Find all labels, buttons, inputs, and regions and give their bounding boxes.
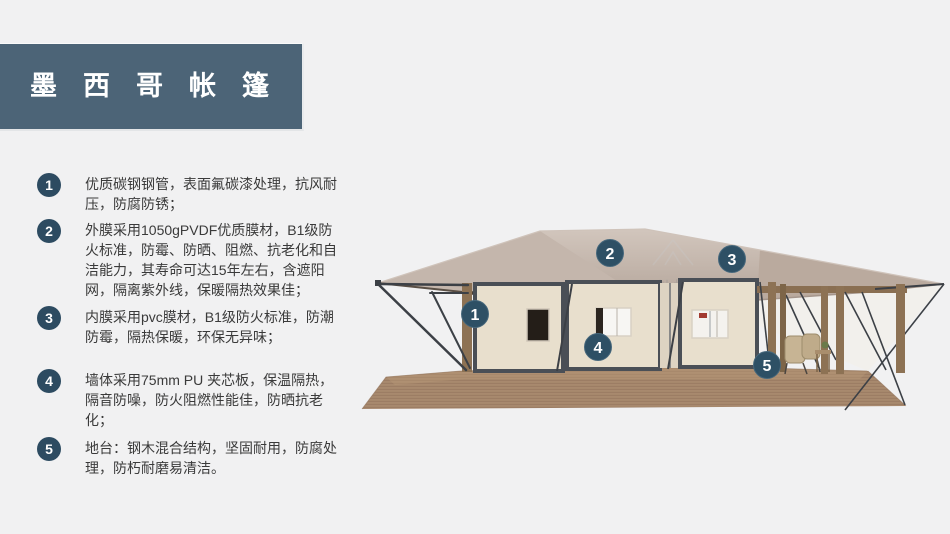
feature-number-badge: 1	[37, 173, 61, 197]
feature-item-4: 4 墙体采用75mm PU 夹芯板，保温隔热，隔音防噪，防火阻燃性能佳，防晒抗老…	[37, 367, 347, 430]
feature-item-3: 3 内膜采用pvc膜材，B1级防火标准，防潮防霉，隔热保暖，环保无异味；	[37, 304, 347, 347]
feature-text: 内膜采用pvc膜材，B1级防火标准，防潮防霉，隔热保暖，环保无异味；	[85, 307, 339, 347]
callout-1: 1	[462, 301, 489, 328]
feature-item-5: 5 地台：钢木混合结构，坚固耐用，防腐处理，防朽耐磨易清洁。	[37, 435, 347, 478]
callout-number: 3	[728, 252, 737, 269]
side-table	[815, 350, 831, 354]
feature-item-2: 2 外膜采用1050gPVDF优质膜材，B1级防火标准，防霉、防晒、阻燃、抗老化…	[37, 217, 347, 300]
feature-number-badge: 4	[37, 369, 61, 393]
feature-number-badge: 2	[37, 219, 61, 243]
wall-modules	[475, 280, 757, 371]
window-left	[527, 309, 549, 341]
feature-item-1: 1 优质碳钢钢管，表面氟碳漆处理，抗风耐压，防腐防锈；	[37, 171, 347, 214]
callout-4: 4	[585, 334, 612, 361]
feature-text: 墙体采用75mm PU 夹芯板，保温隔热，隔音防噪，防火阻燃性能佳，防晒抗老化；	[85, 370, 339, 430]
corner-post	[462, 283, 472, 372]
callout-number: 2	[606, 246, 615, 263]
window-middle	[596, 308, 631, 336]
plant	[822, 342, 829, 349]
pergola-beam	[757, 286, 907, 293]
callout-5: 5	[754, 352, 781, 379]
slide: 墨西哥帐篷 1 优质碳钢钢管，表面氟碳漆处理，抗风耐压，防腐防锈； 2 外膜采用…	[0, 0, 950, 534]
page-title: 墨西哥帐篷	[0, 73, 295, 100]
feature-text: 外膜采用1050gPVDF优质膜材，B1级防火标准，防霉、防晒、阻燃、抗老化和自…	[85, 220, 339, 300]
callout-2: 2	[597, 240, 624, 267]
wall-module-left	[475, 284, 563, 371]
window-right	[692, 310, 728, 338]
tent-render: 雪利帐篷 XUELI TENT	[355, 213, 950, 425]
feature-text: 地台：钢木混合结构，坚固耐用，防腐处理，防朽耐磨易清洁。	[85, 438, 339, 478]
callout-3: 3	[719, 246, 746, 273]
feature-number-badge: 3	[37, 306, 61, 330]
title-banner: 墨西哥帐篷	[0, 43, 304, 131]
tent-illustration: 雪利帐篷 XUELI TENT	[355, 213, 950, 425]
feature-text: 优质碳钢钢管，表面氟碳漆处理，抗风耐压，防腐防锈；	[85, 174, 339, 214]
callout-number: 5	[763, 358, 772, 375]
callout-number: 1	[471, 307, 480, 324]
left-braces	[375, 280, 470, 370]
callout-number: 4	[594, 340, 603, 357]
feature-number-badge: 5	[37, 437, 61, 461]
